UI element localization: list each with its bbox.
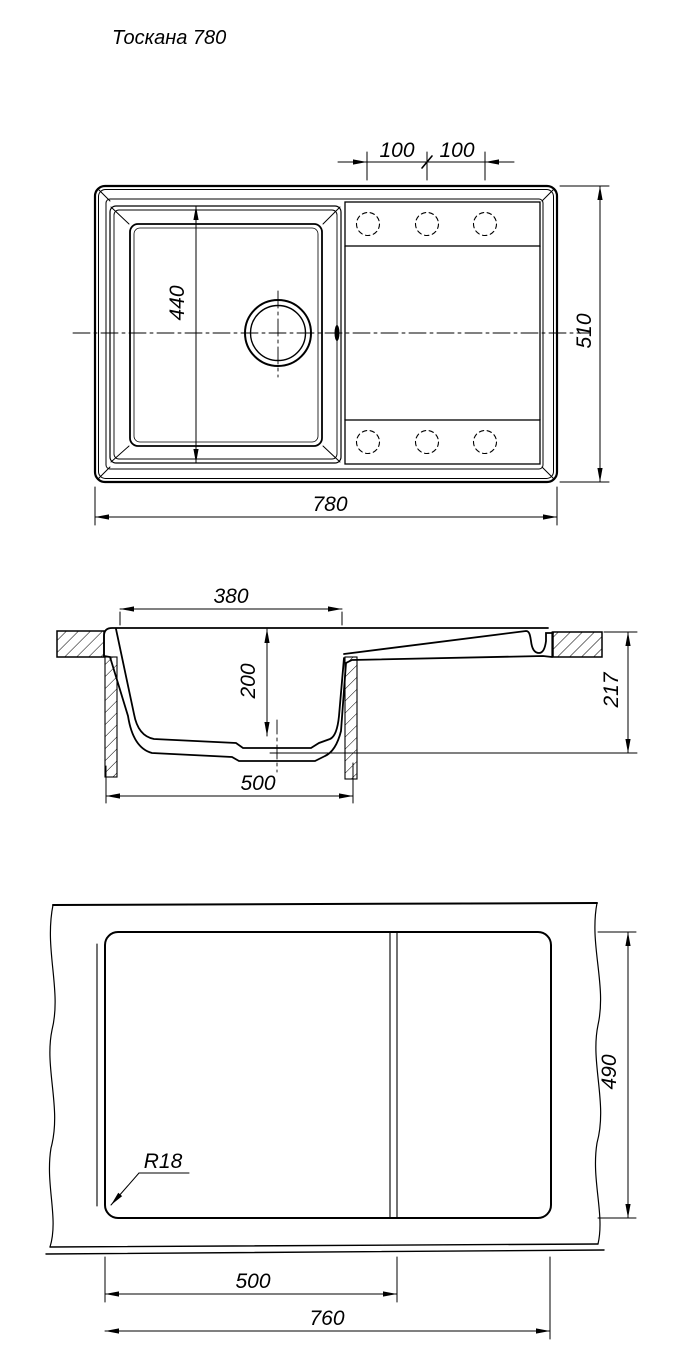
cutout-outline — [105, 932, 551, 1218]
rim-corner-mitres — [99, 190, 553, 478]
tap-hole — [416, 431, 439, 454]
top-view: 100 100 440 510 780 — [73, 139, 609, 525]
break-line-left — [49, 905, 55, 1247]
bowl-chamfer-line — [114, 210, 337, 459]
dim-overall-height-label: 217 — [600, 671, 623, 708]
dim-base-width — [106, 763, 353, 803]
dim-overall-width-label: 510 — [573, 313, 596, 348]
drawing-title: Тоскана 780 — [112, 27, 226, 49]
sink-rim-line — [99, 190, 554, 479]
tap-hole — [357, 213, 380, 236]
rim-top-line — [104, 628, 548, 656]
dim-tap-spacing-right-label: 100 — [439, 139, 474, 162]
tap-hole — [357, 431, 380, 454]
dim-corner-radius-label: R18 — [144, 1150, 183, 1173]
dim-tap-spacing — [338, 152, 514, 180]
dim-cutout-depth-label: 490 — [598, 1054, 621, 1089]
sink-rim-inner-line — [106, 199, 543, 469]
cabinet-wall-right — [345, 657, 357, 779]
dim-bowl-top-width-label: 380 — [213, 585, 248, 608]
dim-corner-radius — [111, 1173, 189, 1205]
countertop-panel — [46, 903, 604, 1254]
dim-bowl-depth-label: 200 — [237, 663, 260, 699]
dim-cutout-width-label: 760 — [309, 1307, 344, 1330]
drainer-surface — [344, 631, 553, 654]
tap-strip-bottom — [345, 420, 540, 464]
drawing-sheet: Тоскана 780 — [0, 0, 696, 1372]
tap-hole — [474, 431, 497, 454]
centerlines — [73, 291, 589, 377]
dim-base-width-label: 500 — [240, 772, 275, 795]
tap-hole — [474, 213, 497, 236]
sink-section-profile — [104, 628, 553, 761]
bowl — [110, 206, 341, 463]
section-view: 380 200 500 217 — [57, 585, 637, 803]
technical-drawing: Тоскана 780 — [0, 0, 696, 1372]
dim-overall-length-label: 780 — [312, 493, 347, 516]
tap-hole — [416, 213, 439, 236]
bowl-opening — [130, 224, 322, 446]
dim-bowl-section-width-label: 500 — [235, 1270, 270, 1293]
sink-outline — [95, 186, 557, 482]
bowl-outer-edge — [110, 206, 341, 463]
bowl-inner-wall — [116, 629, 344, 748]
dim-tap-spacing-left-label: 100 — [379, 139, 414, 162]
overflow-mark — [335, 325, 340, 341]
countertop-section-right — [553, 632, 602, 657]
tap-strip-top — [345, 202, 540, 246]
dim-bowl-length-label: 440 — [166, 285, 189, 320]
cutout-view: R18 490 500 760 — [46, 903, 636, 1339]
bowl-outer-wall — [104, 656, 552, 761]
countertop-section-left — [57, 631, 104, 657]
bowl-section-divider — [390, 933, 397, 1217]
dim-bowl-top-width — [120, 609, 342, 625]
bowl-inner-line — [134, 228, 318, 442]
